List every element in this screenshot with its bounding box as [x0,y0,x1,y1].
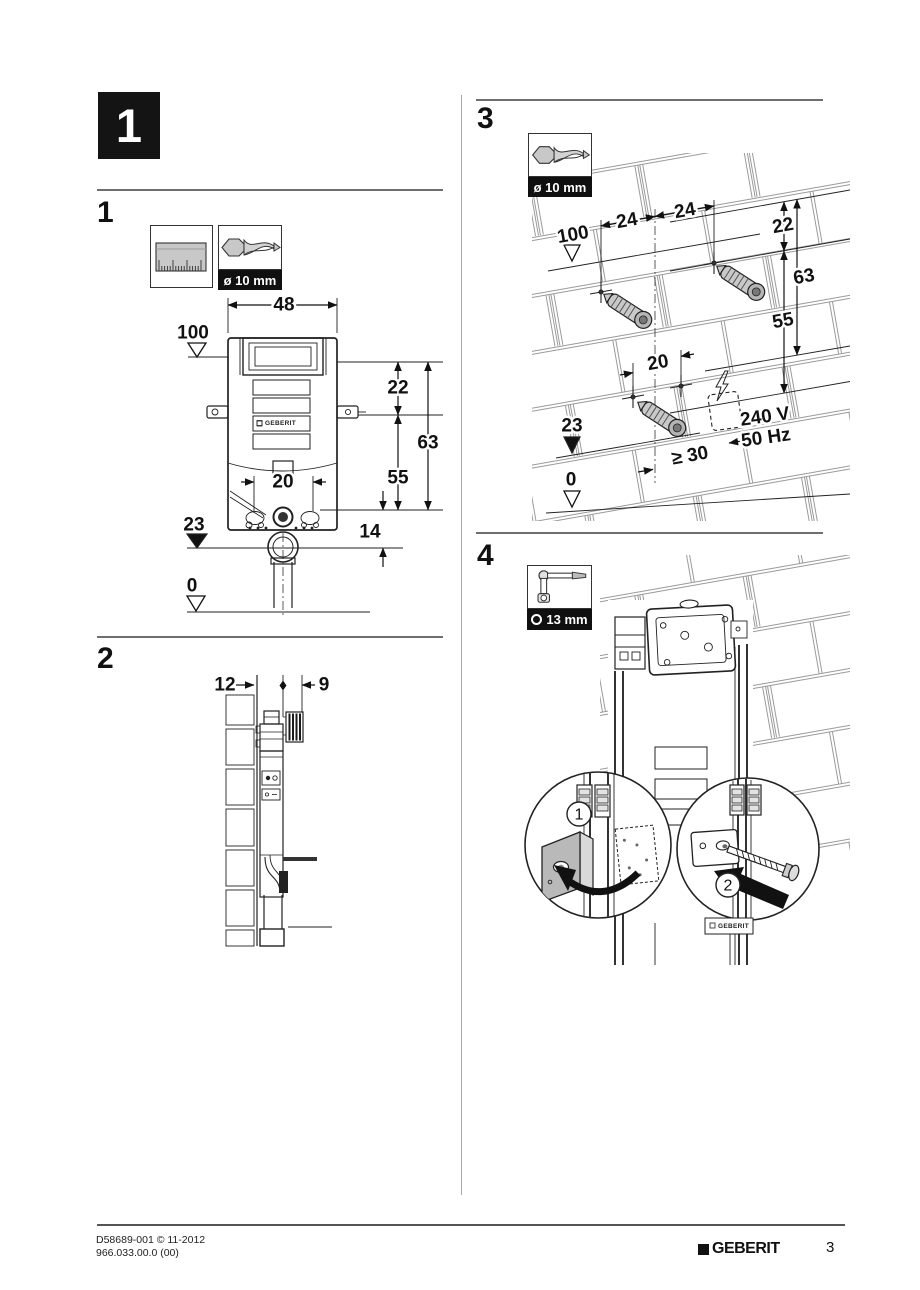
drill-tool-box [218,225,282,270]
geberit-logo: GEBERIT [698,1240,780,1258]
drill-bit-icon [529,134,591,176]
section-1-rule [97,189,443,191]
drill-size-label-3: ø 10 mm [528,177,592,197]
fig1-datum-100: 100 [177,323,209,344]
fig4-product-label: GEBERIT [718,923,749,930]
fig1-dim-20: 20 [272,472,293,493]
section-3-heading: 3 [477,104,494,134]
section-1-heading: 1 [97,198,114,228]
fig3-dim-63: 63 [792,265,816,289]
fig2-linework [226,675,332,946]
manual-page: 1 1 2 3 4 [0,0,920,1290]
fig1-dim-55: 55 [387,468,409,489]
figure-2-side-view: 12 9 [190,665,450,965]
fig3-datum-23: 23 [561,416,582,437]
drill-tool-box-3 [528,133,592,177]
fig3-dim-20: 20 [646,351,670,375]
footer-article-code: 966.033.00.0 (00) [96,1247,205,1260]
socket-icon [531,614,542,625]
fig3-dim-24b: 24 [673,199,698,223]
ruler-tool-box [150,225,213,288]
callout-1-number: 1 [575,807,584,824]
ruler-icon [151,226,212,287]
section-3-rule [476,99,823,101]
fig2-dim-9: 9 [319,675,330,696]
wrench-size-text: 13 mm [546,612,587,627]
fig1-product-label: GEBERIT [265,420,296,427]
figure-1-front-view: 48 100 20 22 55 63 14 23 0 GEBERIT [150,295,445,630]
section-4-heading: 4 [477,541,494,571]
drill-size-text-3: ø 10 mm [534,180,587,195]
drill-bit-icon [219,226,281,269]
column-divider [461,95,462,1195]
fig1-linework [187,298,443,615]
fig1-datum-23: 23 [183,515,204,536]
fig2-dim-12: 12 [214,675,235,696]
fig1-dim-14: 14 [359,522,381,543]
fig3-dim-22: 22 [771,214,795,238]
wrench-size-label: 13 mm [527,609,592,630]
page-number: 3 [826,1239,834,1256]
section-2-rule [97,636,443,638]
footer-document-code: D58689-001 © 11-2012 [96,1234,205,1247]
geberit-logo-text: GEBERIT [712,1240,780,1258]
drill-size-text-1: ø 10 mm [224,273,277,288]
drill-size-label-1: ø 10 mm [218,270,282,290]
callout-2-number: 2 [724,878,733,895]
fig1-datum-0: 0 [187,576,198,597]
geberit-logo-square [698,1244,709,1255]
fig1-dim-width: 48 [273,295,294,316]
fig1-dim-63: 63 [417,433,438,454]
fig3-datum-0: 0 [566,470,577,491]
wrench-tool-box [527,565,592,609]
footer-rule [97,1224,845,1226]
fig3-dim-24a: 24 [615,209,640,233]
step-badge: 1 [98,92,160,159]
fig3-dim-55: 55 [771,309,796,333]
section-2-heading: 2 [97,644,114,674]
footer-codes: D58689-001 © 11-2012 966.033.00.0 (00) [96,1234,205,1260]
fig1-dim-22: 22 [387,378,408,399]
socket-wrench-icon [528,566,591,608]
